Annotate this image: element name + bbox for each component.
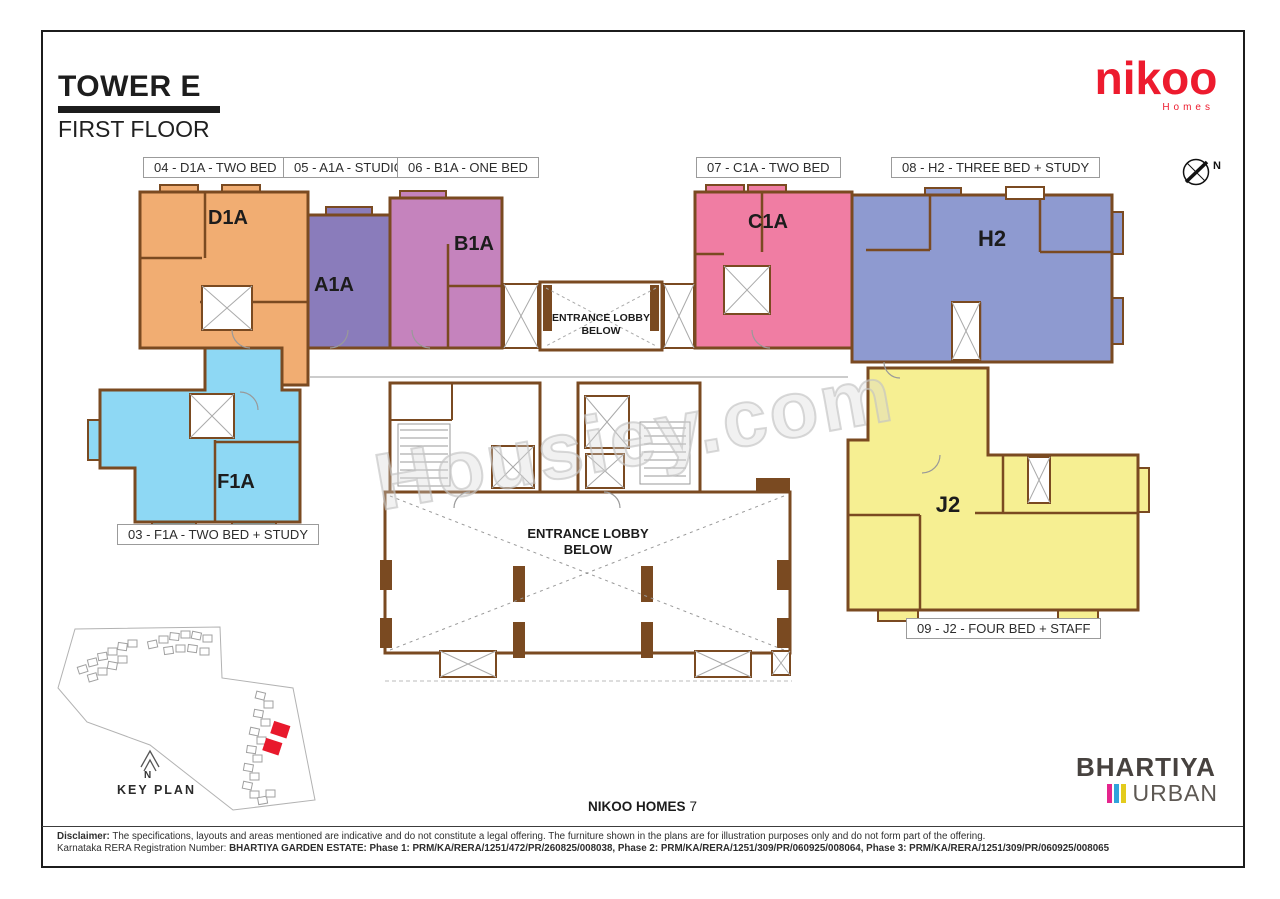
title-underline bbox=[58, 106, 220, 113]
core-block-right bbox=[578, 383, 700, 492]
urban-logo-text: URBAN bbox=[1132, 782, 1218, 805]
bhartiya-logo-text: BHARTIYA bbox=[1076, 754, 1218, 781]
unit-label-f1a: F1A bbox=[217, 471, 255, 493]
disclaimer-line: Disclaimer: The specifications, layouts … bbox=[57, 831, 1232, 843]
bhartiya-urban-logo: BHARTIYA URBAN bbox=[1076, 754, 1218, 805]
bhartiya-logo-bars-icon bbox=[1107, 783, 1128, 804]
rera-line: Karnataka RERA Registration Number: BHAR… bbox=[57, 843, 1232, 855]
floor-plan-sheet: TOWER E FIRST FLOOR nikoo Homes N 04 - D… bbox=[0, 0, 1280, 899]
unit-tag-08-h2: 08 - H2 - THREE BED + STUDY bbox=[891, 157, 1100, 178]
lift-right-2 bbox=[586, 454, 624, 488]
entrance-lobby-lower bbox=[380, 478, 792, 681]
unit-label-c1a: C1A bbox=[748, 211, 788, 233]
unit-label-h2: H2 bbox=[978, 226, 1006, 251]
project-name: NIKOO HOMES7 bbox=[588, 799, 697, 814]
unit-j2-area bbox=[848, 368, 1138, 610]
unit-tag-05-a1a: 05 - A1A - STUDIO bbox=[283, 157, 415, 178]
keyplan-title: KEY PLAN bbox=[117, 783, 196, 797]
lift-right-1 bbox=[585, 396, 629, 448]
entrance-lobby-lower-label: ENTRANCE LOBBY BELOW bbox=[498, 526, 678, 558]
unit-label-a1a: A1A bbox=[314, 274, 354, 296]
unit-b1a-area bbox=[390, 198, 502, 348]
unit-tag-03-f1a: 03 - F1A - TWO BED + STUDY bbox=[117, 524, 319, 545]
keyplan-north-arrow bbox=[141, 751, 159, 771]
unit-h2-area bbox=[852, 195, 1112, 362]
unit-label-j2: J2 bbox=[936, 492, 960, 517]
keyplan-north-label: N bbox=[144, 770, 152, 781]
unit-tag-06-b1a: 06 - B1A - ONE BED bbox=[397, 157, 539, 178]
compass-north-label: N bbox=[1213, 160, 1221, 172]
keyplan-buildings bbox=[77, 631, 275, 805]
unit-tag-09-j2: 09 - J2 - FOUR BED + STAFF bbox=[906, 618, 1101, 639]
legal-text: Disclaimer: The specifications, layouts … bbox=[57, 831, 1232, 854]
compass-icon bbox=[1184, 160, 1209, 185]
unit-label-b1a: B1A bbox=[454, 233, 494, 255]
footer-divider bbox=[42, 826, 1243, 827]
nikoo-logo: nikoo Homes bbox=[1088, 56, 1224, 113]
lift-left bbox=[492, 446, 534, 488]
unit-label-d1a: D1A bbox=[208, 207, 248, 229]
unit-tag-04-d1a: 04 - D1A - TWO BED bbox=[143, 157, 288, 178]
nikoo-logo-text: nikoo bbox=[1088, 56, 1224, 100]
core-block-left bbox=[390, 383, 540, 492]
page-title: TOWER E bbox=[58, 70, 201, 104]
floor-subtitle: FIRST FLOOR bbox=[58, 116, 210, 143]
unit-tag-07-c1a: 07 - C1A - TWO BED bbox=[696, 157, 841, 178]
entrance-lobby-upper-label: ENTRANCE LOBBY BELOW bbox=[534, 312, 668, 338]
